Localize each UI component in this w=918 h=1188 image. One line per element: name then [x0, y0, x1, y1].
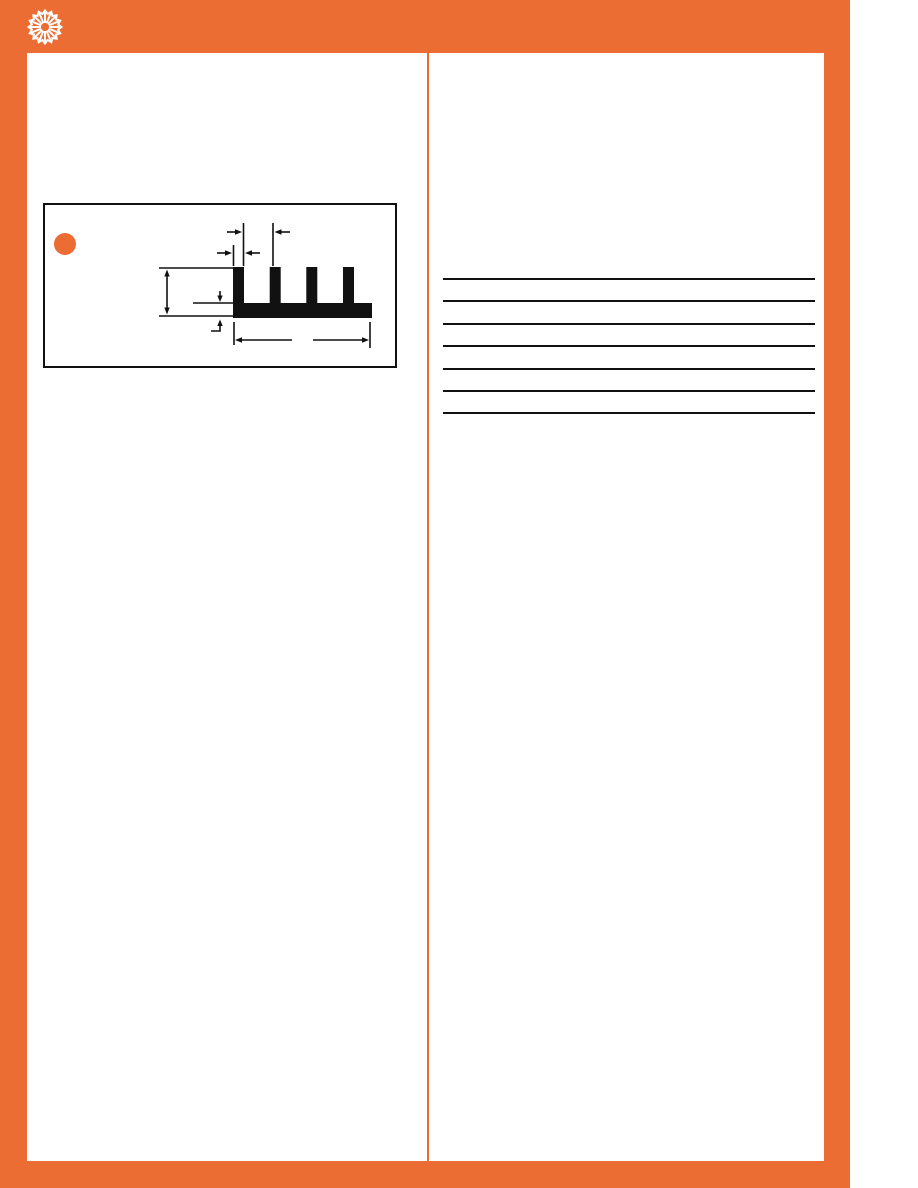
table-rule [443, 412, 815, 414]
table-rule [443, 278, 815, 280]
top-orange-band [0, 0, 850, 53]
heatsink-cross-section [233, 267, 372, 318]
left-orange-band [0, 53, 27, 1188]
heatsink-fins [233, 267, 354, 304]
dimension-lines [159, 223, 370, 348]
table-rule [443, 345, 815, 347]
column-divider-rule [427, 53, 429, 1161]
table-rule [443, 390, 815, 392]
heatsink-base [233, 303, 372, 318]
figure-box [43, 203, 397, 368]
heatsink-profile-diagram [45, 205, 395, 366]
table-rule [443, 323, 815, 325]
bottom-orange-band [0, 1161, 850, 1188]
heatsink-fin [233, 267, 244, 304]
heatsink-fin [306, 267, 317, 304]
table-rule [443, 300, 815, 302]
right-orange-band [824, 53, 850, 1161]
heatsink-fin [270, 267, 281, 304]
table-rule [443, 368, 815, 370]
logo-starburst-icon [23, 5, 67, 49]
heatsink-fin [343, 267, 354, 304]
